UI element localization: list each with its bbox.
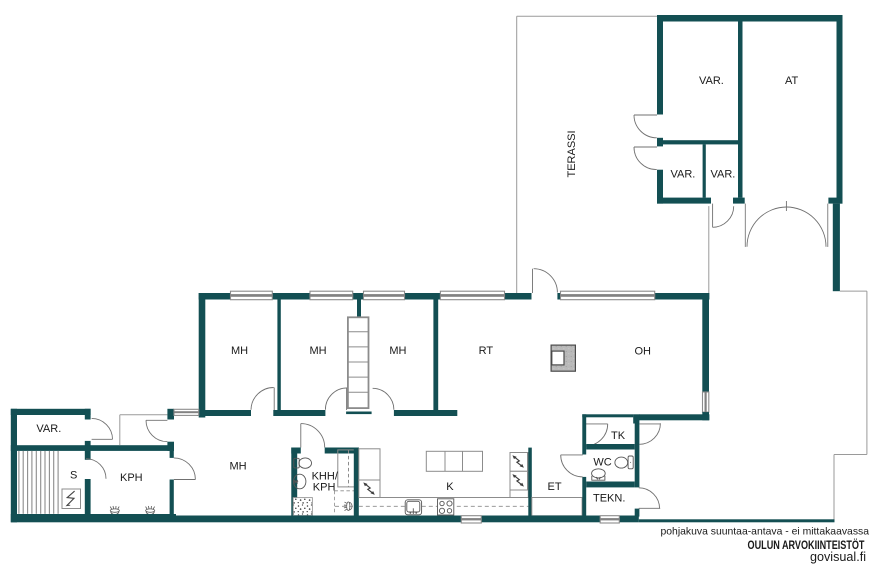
svg-text:govisual.fi: govisual.fi: [810, 550, 866, 564]
svg-text:ET: ET: [548, 481, 562, 493]
svg-text:K: K: [446, 481, 454, 493]
svg-text:TEKN.: TEKN.: [593, 493, 625, 505]
svg-text:TERASSI: TERASSI: [566, 130, 578, 177]
svg-text:MH: MH: [310, 345, 327, 357]
svg-text:OH: OH: [635, 346, 652, 358]
svg-text:pohjakuva suuntaa-antava - ei: pohjakuva suuntaa-antava - ei mittakaava…: [660, 527, 869, 538]
svg-text:RT: RT: [479, 345, 494, 357]
svg-text:S: S: [70, 470, 77, 482]
svg-text:KPH: KPH: [313, 482, 336, 494]
svg-text:MH: MH: [389, 345, 406, 357]
svg-text:MH: MH: [230, 461, 247, 473]
svg-text:VAR.: VAR.: [36, 423, 61, 435]
svg-text:VAR.: VAR.: [699, 75, 724, 87]
svg-text:MH: MH: [231, 345, 248, 357]
svg-text:WC: WC: [593, 457, 611, 469]
svg-text:VAR.: VAR.: [711, 169, 736, 181]
svg-text:AT: AT: [785, 75, 799, 87]
svg-text:TK: TK: [611, 430, 626, 442]
svg-text:VAR.: VAR.: [671, 169, 696, 181]
svg-text:KPH: KPH: [120, 472, 143, 484]
